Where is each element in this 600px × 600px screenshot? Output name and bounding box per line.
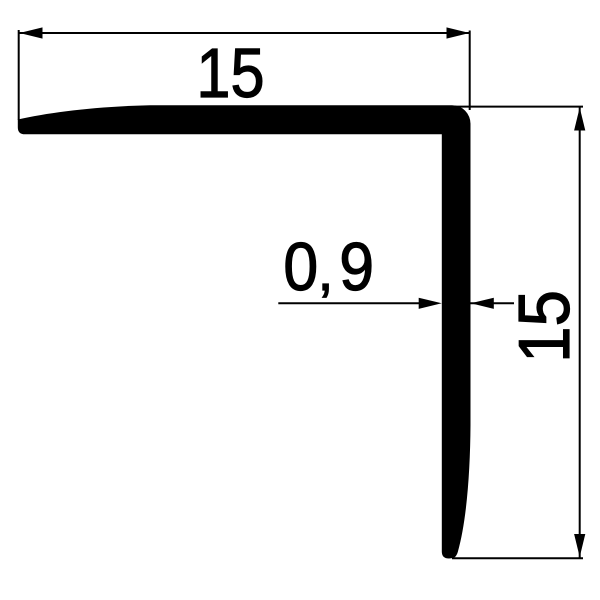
svg-text:15: 15 [504, 290, 585, 363]
svg-text:0: 0 [283, 228, 318, 304]
svg-text:15: 15 [196, 33, 264, 112]
svg-text:9: 9 [339, 228, 374, 304]
svg-text:,: , [318, 239, 334, 303]
